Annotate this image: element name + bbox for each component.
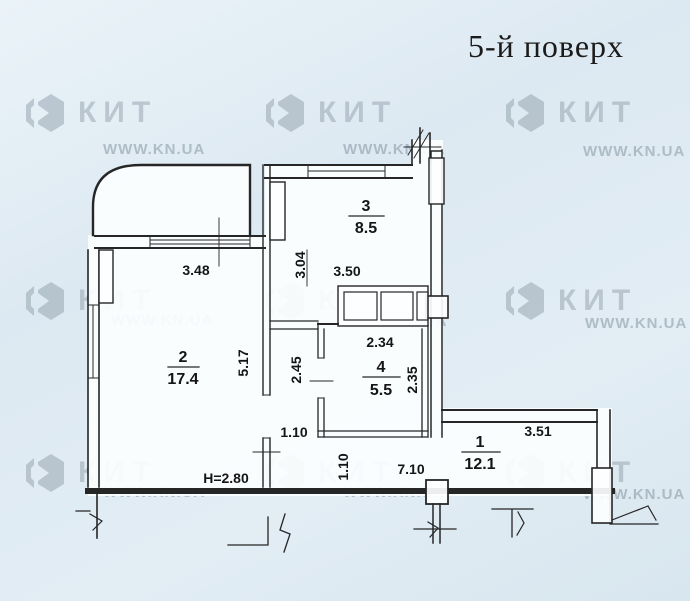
dim-corridor-width: 1.10 xyxy=(280,424,307,440)
dim-kitchen-left: 3.04 xyxy=(292,251,308,278)
room-1-area: 12.1 xyxy=(464,456,495,473)
room-3-number: 3 xyxy=(362,198,371,215)
dim-kitchen-width: 3.50 xyxy=(333,263,360,279)
dim-hall-top: 3.51 xyxy=(524,423,551,439)
dim-room2-top: 3.48 xyxy=(182,262,209,278)
screenshot-root: { "title": "5-й поверх", "watermark": { … xyxy=(0,0,690,601)
dim-hall-left: 1.10 xyxy=(335,453,351,480)
room-4-number: 4 xyxy=(377,359,386,376)
room-1-number: 1 xyxy=(476,434,485,451)
room-2-area: 17.4 xyxy=(167,371,198,388)
dim-room2-right: 5.17 xyxy=(235,349,251,376)
room-2-number: 2 xyxy=(179,349,188,366)
ceiling-height-note: H=2.80 xyxy=(203,470,249,486)
dim-bath-top: 2.34 xyxy=(366,334,393,350)
dim-corridor: 2.45 xyxy=(288,356,304,383)
dim-hall-width: 7.10 xyxy=(397,461,424,477)
room-3-area: 8.5 xyxy=(355,220,377,237)
room-4-area: 5.5 xyxy=(370,382,392,399)
floor-title: 5-й поверх xyxy=(468,28,688,65)
dim-bath-right: 2.35 xyxy=(404,366,420,393)
floor-plan: 3 8.5 2 17.4 4 5.5 1 12.1 3.48 3.04 3.50… xyxy=(0,0,690,601)
